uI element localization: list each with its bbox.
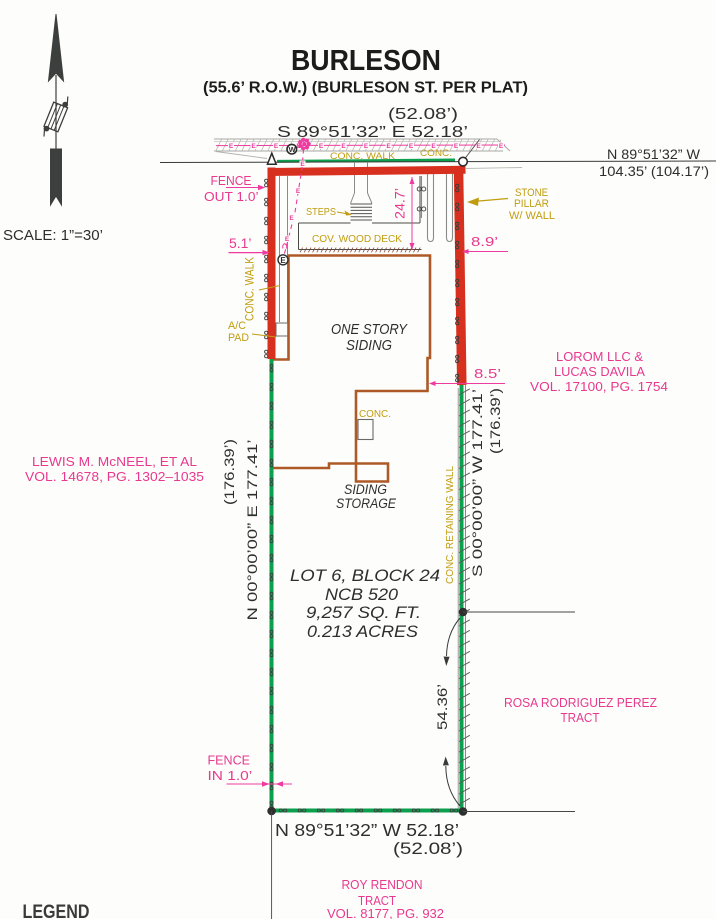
svg-text:(55.6’ R.O.W.) (BURLESON ST. P: (55.6’ R.O.W.) (BURLESON ST. PER PLAT)	[203, 80, 528, 97]
svg-text:E: E	[409, 143, 414, 150]
svg-text:TRACT: TRACT	[561, 710, 600, 725]
svg-text:E: E	[289, 215, 294, 222]
svg-text:LEWIS M. McNEEL, ET AL: LEWIS M. McNEEL, ET AL	[32, 454, 197, 469]
svg-text:CONC.: CONC.	[420, 148, 452, 159]
svg-text:CONC.: CONC.	[359, 408, 391, 420]
svg-text:SIDING: SIDING	[344, 482, 387, 497]
svg-text:VOL. 8177, PG. 932: VOL. 8177, PG. 932	[327, 906, 444, 919]
svg-text:STEPS: STEPS	[306, 206, 336, 218]
svg-text:BURLESON: BURLESON	[291, 45, 441, 77]
svg-text:A/C: A/C	[228, 320, 246, 332]
svg-text:CONC. WALK: CONC. WALK	[330, 151, 396, 162]
svg-text:S 00°00’00” W 177.41’: S 00°00’00” W 177.41’	[469, 389, 485, 577]
svg-text:FENCE: FENCE	[208, 753, 251, 768]
svg-text:CONC. WALK: CONC. WALK	[245, 257, 257, 321]
svg-text:E: E	[341, 143, 346, 150]
svg-text:ROSA RODRIGUEZ PEREZ: ROSA RODRIGUEZ PEREZ	[504, 695, 657, 710]
svg-text:LOROM LLC &: LOROM LLC &	[556, 349, 643, 364]
svg-text:(52.08’): (52.08’)	[393, 839, 463, 858]
svg-text:FENCE: FENCE	[211, 173, 252, 188]
svg-text:0.213 ACRES: 0.213 ACRES	[307, 623, 418, 641]
svg-text:SIDING: SIDING	[346, 338, 392, 354]
svg-text:24.7’: 24.7’	[393, 188, 408, 219]
svg-text:LUCAS DAVILA: LUCAS DAVILA	[554, 364, 645, 379]
svg-text:IN 1.0’: IN 1.0’	[208, 768, 253, 783]
svg-text:5.1’: 5.1’	[229, 235, 252, 251]
svg-text:W/ WALL: W/ WALL	[509, 210, 555, 222]
svg-text:104.35’ (104.17’): 104.35’ (104.17’)	[599, 163, 709, 179]
svg-text:E: E	[386, 143, 391, 150]
svg-text:E: E	[285, 236, 290, 243]
svg-text:N 89°51’32” W 52.18’: N 89°51’32” W 52.18’	[275, 820, 459, 840]
svg-text:SCALE: 1”=30’: SCALE: 1”=30’	[3, 228, 103, 244]
svg-text:N 89°51’32” W: N 89°51’32” W	[607, 146, 701, 162]
svg-text:E: E	[296, 188, 301, 195]
svg-text:COV. WOOD DECK: COV. WOOD DECK	[312, 233, 402, 245]
svg-text:8.9’: 8.9’	[471, 234, 498, 249]
svg-text:8.5’: 8.5’	[474, 366, 501, 381]
svg-text:PILLAR: PILLAR	[514, 198, 549, 210]
svg-text:E: E	[454, 143, 459, 150]
svg-text:ONE STORY: ONE STORY	[331, 322, 408, 338]
svg-text:NCB 520: NCB 520	[325, 586, 399, 604]
svg-text:(52.08’): (52.08’)	[388, 106, 458, 123]
svg-text:9,257 SQ. FT.: 9,257 SQ. FT.	[306, 604, 421, 622]
svg-text:E: E	[476, 143, 481, 150]
svg-text:54.36’: 54.36’	[434, 684, 450, 730]
svg-text:PAD: PAD	[228, 332, 249, 344]
svg-text:LOT 6, BLOCK 24: LOT 6, BLOCK 24	[290, 567, 440, 585]
svg-text:OUT 1.0’: OUT 1.0’	[204, 189, 259, 204]
svg-text:E: E	[319, 143, 324, 150]
svg-text:(176.39’): (176.39’)	[221, 439, 237, 505]
svg-text:W: W	[289, 145, 297, 154]
svg-text:VOL. 17100, PG. 1754: VOL. 17100, PG. 1754	[530, 379, 668, 394]
svg-text:E: E	[251, 143, 256, 150]
svg-text:E: E	[280, 256, 286, 265]
svg-text:E: E	[229, 143, 234, 150]
svg-text:(176.39’): (176.39’)	[487, 388, 503, 454]
svg-text:CONC. RETAINING WALL: CONC. RETAINING WALL	[444, 466, 456, 584]
svg-text:STORAGE: STORAGE	[336, 496, 397, 511]
svg-text:ROY RENDON: ROY RENDON	[342, 877, 423, 892]
svg-text:E: E	[364, 143, 369, 150]
svg-text:E: E	[499, 143, 504, 150]
svg-text:N 00°00’00” E 177.41’: N 00°00’00” E 177.41’	[244, 440, 260, 621]
svg-text:E: E	[274, 143, 279, 150]
svg-text:S 89°51’32” E 52.18’: S 89°51’32” E 52.18’	[277, 124, 468, 141]
svg-text:E: E	[300, 161, 305, 168]
svg-text:VOL. 14678, PG. 1302–1035: VOL. 14678, PG. 1302–1035	[25, 469, 204, 484]
svg-text:LEGEND: LEGEND	[23, 902, 90, 919]
